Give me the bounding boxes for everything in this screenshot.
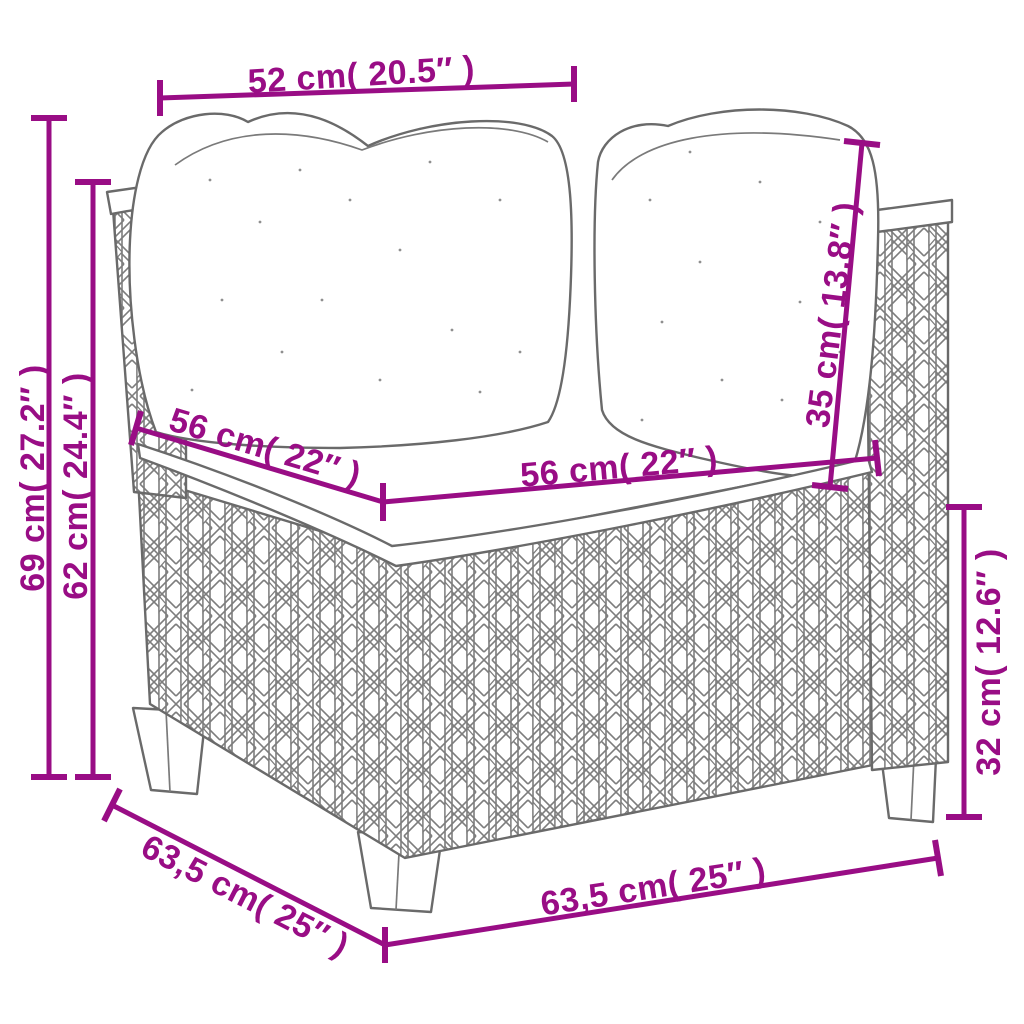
right-back-panel (866, 218, 948, 770)
left-back-cushion (129, 113, 571, 448)
dim-label-arm-height: 62 cm( 24.4″ ) (57, 372, 95, 599)
dim-base-height: 32 cm( 12.6″ ) (946, 507, 1008, 817)
dim-label-base-width: 63,5 cm( 25″ ) (538, 851, 769, 924)
dim-base-width: 63,5 cm( 25″ ) (385, 840, 941, 963)
dim-label-base-height: 32 cm( 12.6″ ) (970, 548, 1008, 775)
dimension-diagram-svg: 52 cm( 20.5″ ) 69 cm( 27.2″ ) 62 cm( 24.… (0, 0, 1024, 1024)
dim-arm-height: 62 cm( 24.4″ ) (57, 182, 111, 777)
dim-label-base-depth: 63,5 cm( 25″ ) (135, 827, 355, 964)
dim-label-top-width: 52 cm( 20.5″ ) (247, 49, 476, 101)
dim-top-width: 52 cm( 20.5″ ) (160, 49, 574, 116)
dimension-diagram: 52 cm( 20.5″ ) 69 cm( 27.2″ ) 62 cm( 24.… (0, 0, 1024, 1024)
sofa-base (138, 462, 944, 858)
dim-label-overall-height: 69 cm( 27.2″ ) (14, 364, 52, 591)
dim-label-seat-width: 56 cm( 22″ ) (519, 439, 720, 494)
